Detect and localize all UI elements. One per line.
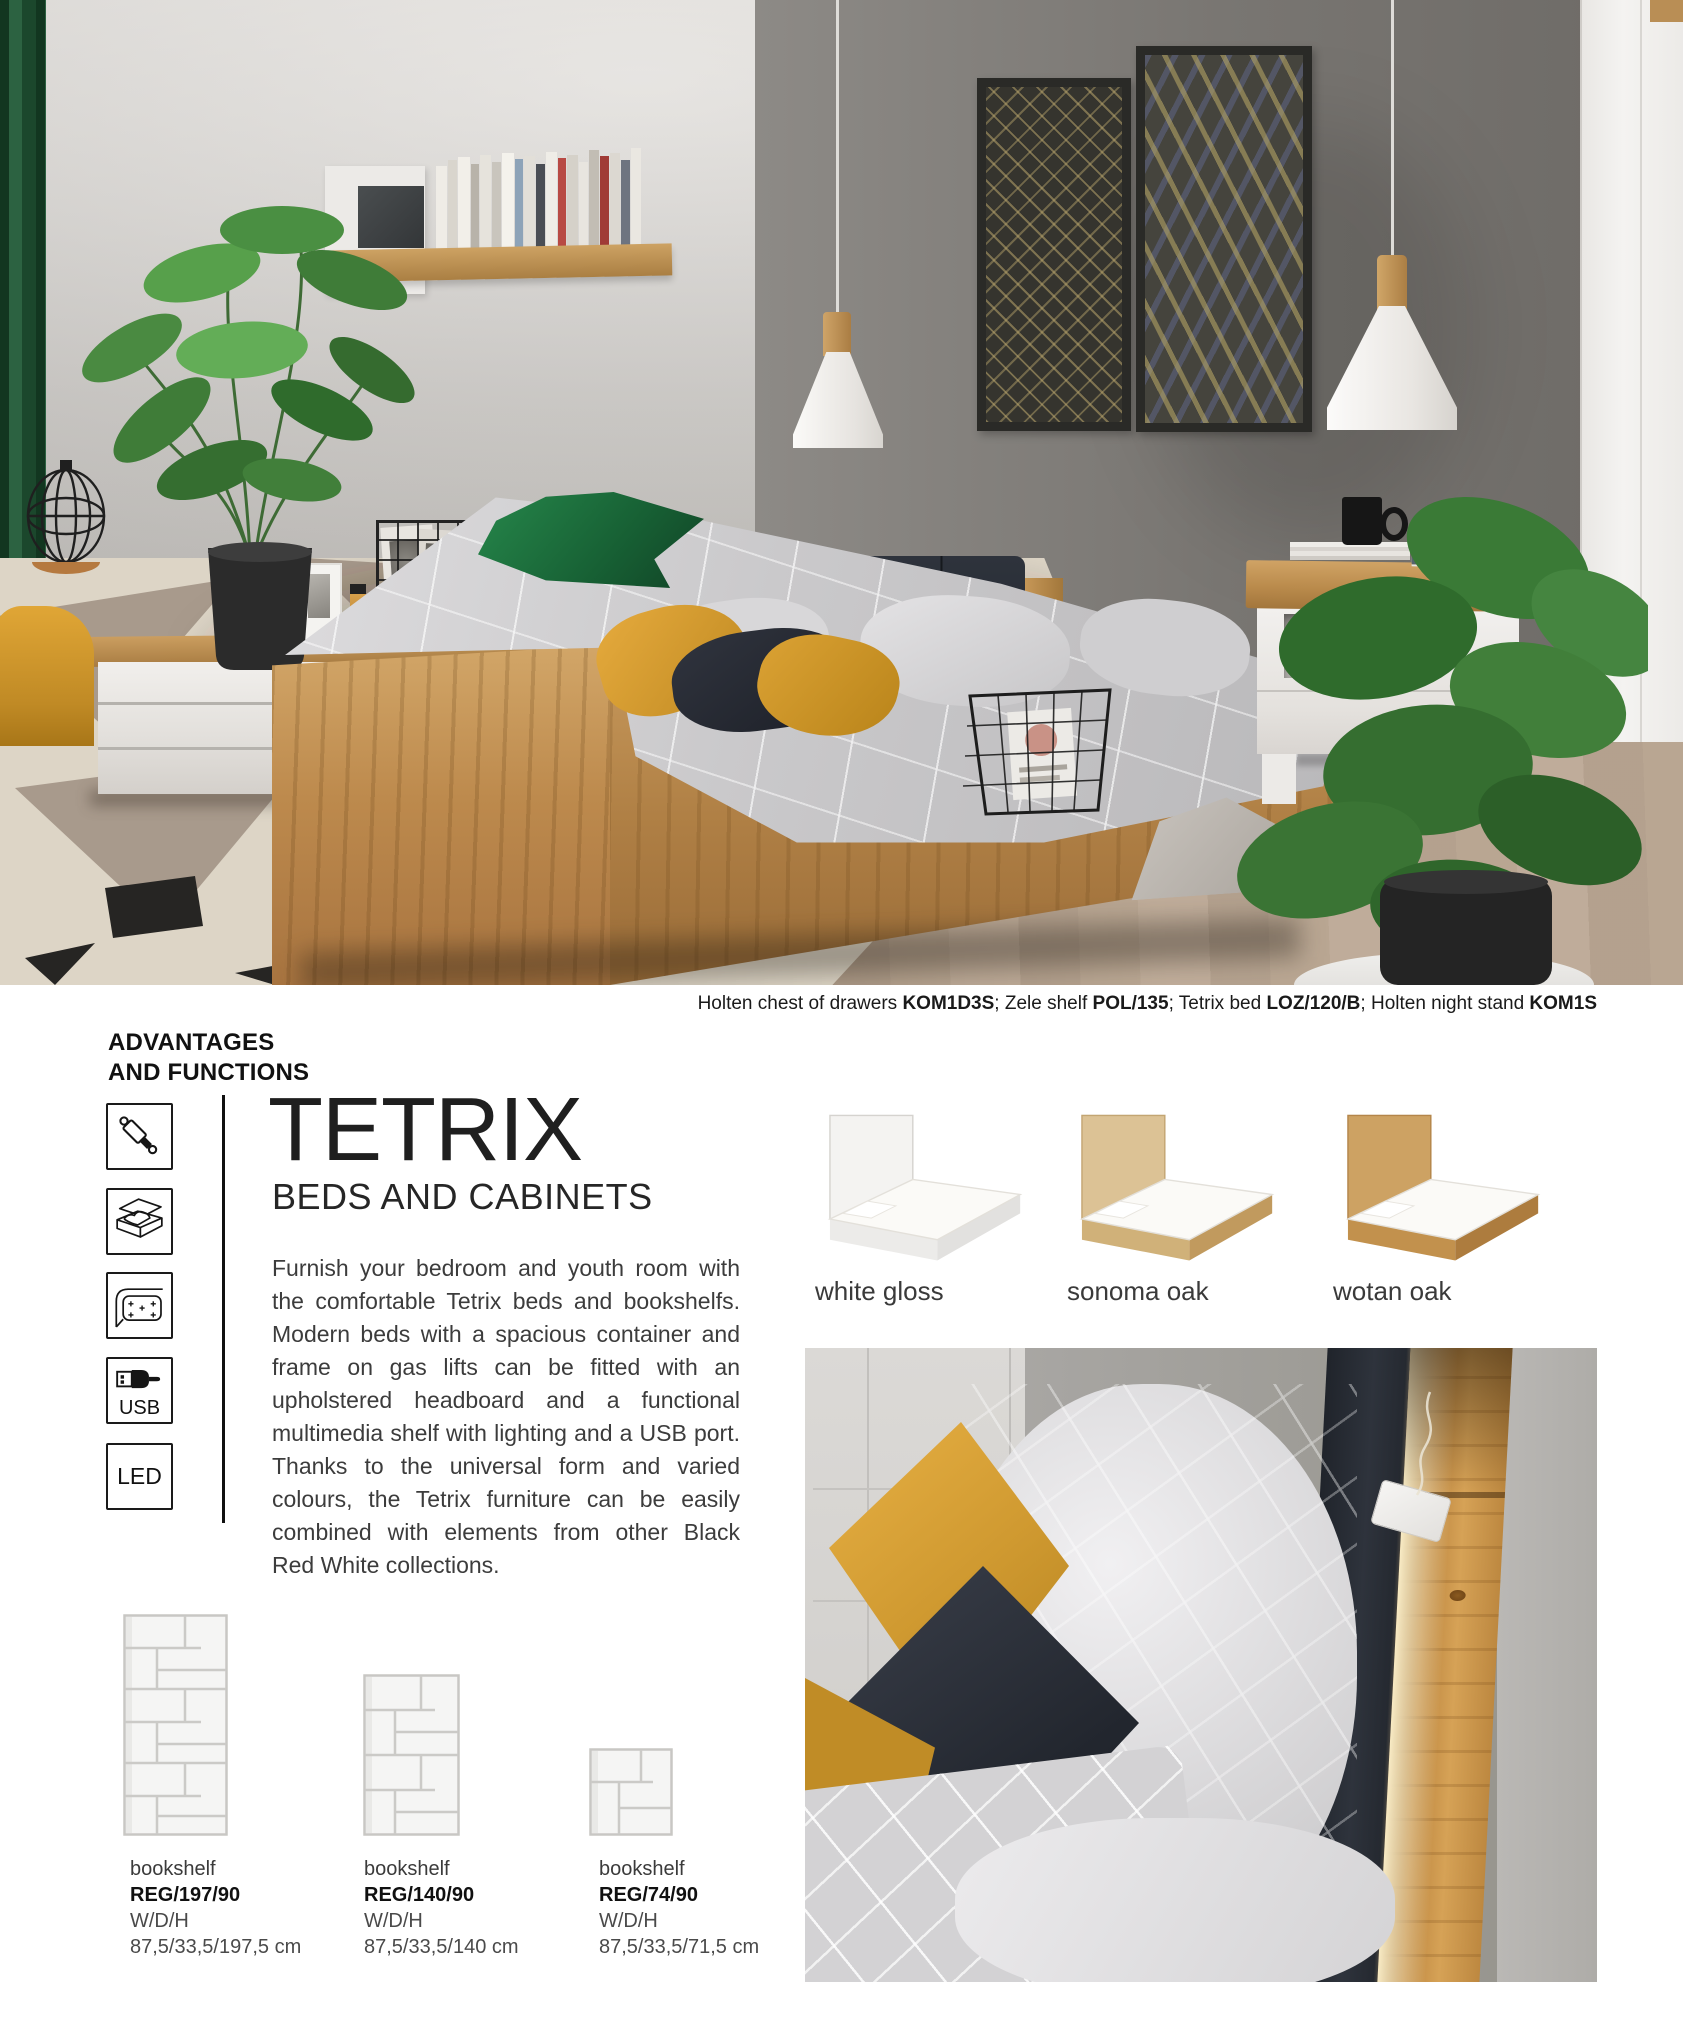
variant-label: white gloss	[815, 1276, 944, 1307]
led-icon-label: LED	[108, 1462, 171, 1489]
dims-value: 87,5/33,5/71,5 cm	[599, 1934, 759, 1960]
variant-white-gloss: white gloss	[813, 1104, 1039, 1275]
product-code: REG/74/90	[599, 1882, 759, 1908]
product-code: REG/197/90	[130, 1882, 301, 1908]
collection-subtitle: BEDS AND CABINETS	[272, 1176, 653, 1218]
dims-label: W/D/H	[599, 1908, 759, 1934]
usb-icon-label: USB	[108, 1397, 171, 1420]
catalog-page: Holten chest of drawers KOM1D3S; Zele sh…	[0, 0, 1683, 2040]
product-info: bookshelf REG/197/90 W/D/H 87,5/33,5/197…	[130, 1856, 301, 1960]
wall-art	[1136, 46, 1312, 432]
books-row	[436, 142, 641, 252]
product-info: bookshelf REG/140/90 W/D/H 87,5/33,5/140…	[364, 1856, 519, 1960]
product-info: bookshelf REG/74/90 W/D/H 87,5/33,5/71,5…	[599, 1856, 759, 1960]
upholstered-headboard-icon	[106, 1272, 173, 1339]
storage-container-icon	[106, 1188, 173, 1255]
variant-label: sonoma oak	[1067, 1276, 1209, 1307]
bed-thumbnail	[1331, 1104, 1557, 1270]
dims-label: W/D/H	[130, 1908, 301, 1934]
photo-caption: Holten chest of drawers KOM1D3S; Zele sh…	[200, 993, 1597, 1015]
detail-photo	[805, 1348, 1597, 1982]
vertical-divider	[222, 1095, 225, 1523]
collection-description: Furnish your bedroom and youth room with…	[272, 1252, 740, 1582]
main-photo	[0, 0, 1683, 985]
dims-value: 87,5/33,5/140 cm	[364, 1934, 519, 1960]
bed-frame	[272, 645, 610, 985]
bed-thumbnail	[813, 1104, 1039, 1270]
dims-label: W/D/H	[364, 1908, 519, 1934]
sheet	[955, 1818, 1395, 1982]
charging-cable	[1345, 1384, 1465, 1504]
wall-art	[977, 78, 1131, 431]
potted-plant	[1078, 438, 1648, 985]
product-code: REG/140/90	[364, 1882, 519, 1908]
variant-sonoma-oak: sonoma oak	[1065, 1104, 1291, 1275]
variant-wotan-oak: wotan oak	[1331, 1104, 1557, 1275]
product-type: bookshelf	[599, 1856, 759, 1882]
product-type: bookshelf	[130, 1856, 301, 1882]
advantages-heading: ADVANTAGES AND FUNCTIONS	[108, 1028, 309, 1088]
bookshelf-thumbnail	[589, 1748, 673, 1836]
ottoman	[0, 606, 94, 746]
bed-thumbnail	[1065, 1104, 1291, 1270]
collection-title: TETRIX	[268, 1085, 582, 1175]
dims-value: 87,5/33,5/197,5 cm	[130, 1934, 301, 1960]
bookshelf-thumbnail	[123, 1614, 228, 1836]
gas-lift-icon	[106, 1103, 173, 1170]
product-type: bookshelf	[364, 1856, 519, 1882]
wire-lantern	[22, 458, 110, 574]
usb-icon: USB	[106, 1357, 173, 1424]
bookshelf-thumbnail	[363, 1674, 460, 1836]
variant-label: wotan oak	[1333, 1276, 1452, 1307]
led-icon: LED	[106, 1443, 173, 1510]
